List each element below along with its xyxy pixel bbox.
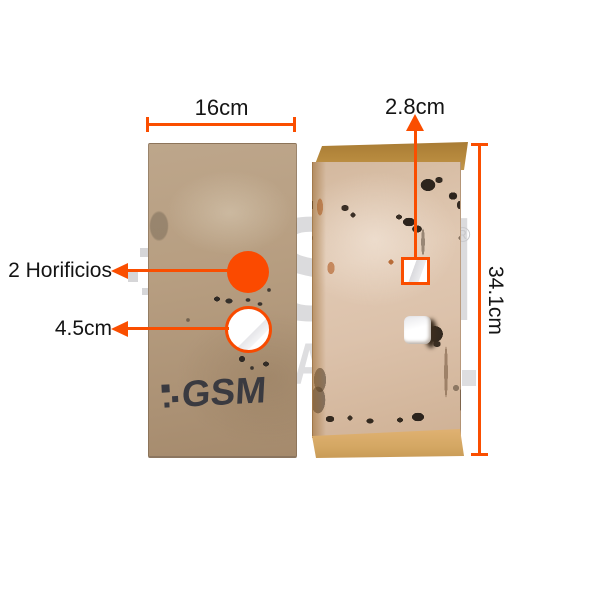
logo-pixel-icon <box>161 384 169 392</box>
arrow-left-icon <box>111 263 128 279</box>
round-hole-leader-line <box>126 327 229 330</box>
round-hole <box>225 306 272 353</box>
right-blade-side-edge <box>312 162 326 438</box>
arrow-up-icon <box>406 114 424 131</box>
logo-pixel-icon <box>172 396 178 402</box>
round-hole-dimension-label: 4.5cm <box>8 317 112 341</box>
logo-pixel-icon <box>164 402 169 407</box>
watermark-fragment <box>462 370 476 386</box>
gsm-logo: GSM <box>159 367 269 423</box>
dimension-tick <box>471 453 488 456</box>
square-hole-highlighted <box>401 257 430 285</box>
arrow-left-icon <box>111 321 128 337</box>
holes-leader-line <box>126 269 229 272</box>
width-dimension-label: 16cm <box>148 95 295 121</box>
dimension-tick <box>471 143 488 146</box>
height-dimension-line <box>478 144 481 455</box>
dimension-tick <box>146 117 149 132</box>
height-dimension-label: 34.1cm <box>483 266 507 335</box>
square-hole <box>404 316 431 344</box>
holes-callout-label: 2 Horificios <box>8 259 112 283</box>
highlighted-hole-marker <box>227 251 269 293</box>
width-dimension-line <box>148 123 295 126</box>
right-blade-plate <box>312 162 461 438</box>
watermark-pixel <box>128 272 138 282</box>
square-hole-leader-line <box>414 130 417 259</box>
logo-text: GSM <box>181 369 267 416</box>
dimension-tick <box>293 117 296 132</box>
